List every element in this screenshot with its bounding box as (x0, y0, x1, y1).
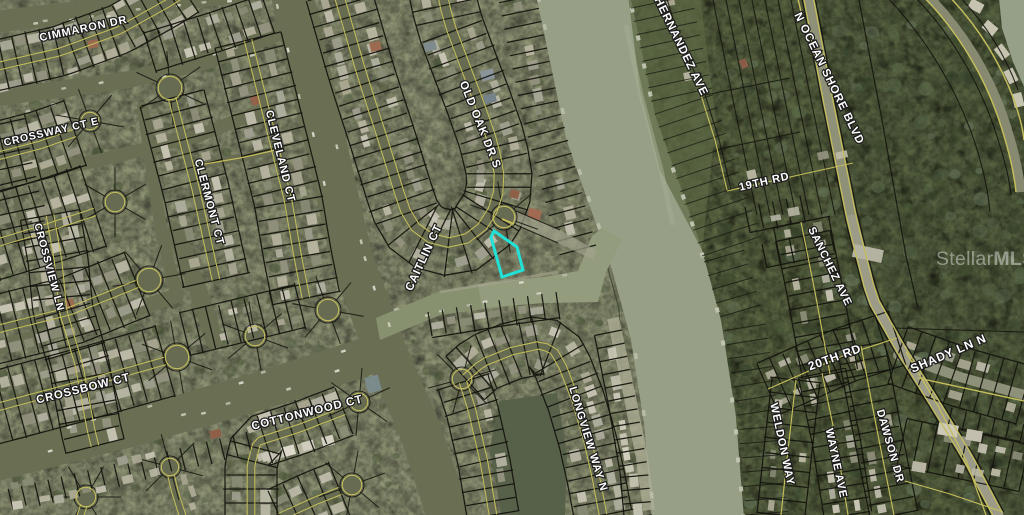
svg-text:StellarMLS: StellarMLS (936, 248, 1024, 270)
